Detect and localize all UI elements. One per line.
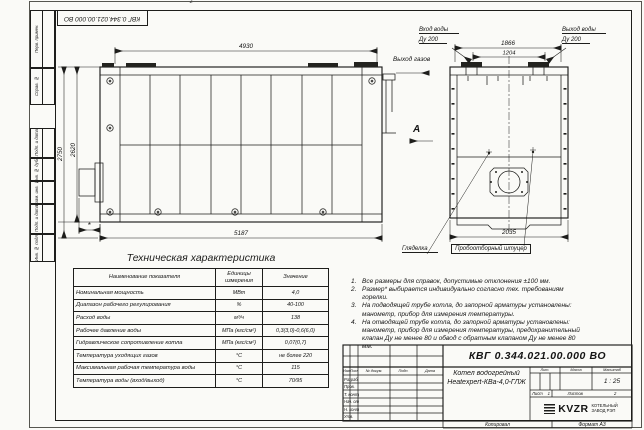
notes: 1.Все размеры для справок, допустимые от… bbox=[351, 278, 584, 351]
spec-header-row: Наименование показателя Единицы измерени… bbox=[74, 269, 329, 287]
sampling-fitting-label: Пробоотборный штуцер bbox=[451, 244, 531, 254]
scale-label: Масштаб bbox=[592, 367, 632, 373]
table-row: Рабочее давление водыМПа (кгс/см²)0,3(3,… bbox=[74, 324, 329, 337]
format-label: Формат А3 bbox=[552, 421, 632, 429]
water-inlet-label: Вход воды bbox=[419, 27, 459, 34]
spec-header-name: Наименование показателя bbox=[74, 269, 216, 287]
gas-outlet-label: Выход газов bbox=[393, 56, 430, 63]
col-data: Дата bbox=[417, 368, 443, 375]
view-a-marker: A bbox=[413, 124, 420, 135]
sheets-cell: Листов 2 bbox=[552, 390, 632, 397]
scale-value: 1 : 25 bbox=[592, 375, 632, 388]
col-list: Лист bbox=[350, 368, 358, 375]
dim-1204: 1204 bbox=[503, 51, 516, 57]
lit-label: Лит. bbox=[530, 367, 560, 373]
water-outlet-dn-label: Ду 200 bbox=[562, 37, 590, 44]
water-outlet-label: Выход воды bbox=[562, 27, 606, 34]
title-block-doc-number: КВГ 0.344.021.00.000 ВО bbox=[443, 346, 632, 366]
dim-asterisk: * bbox=[87, 221, 91, 230]
row-nachotd: Нач. отд. bbox=[344, 398, 359, 405]
dim-2035: 2035 bbox=[501, 229, 517, 236]
side-view-linework bbox=[58, 47, 433, 242]
spec-header-units: Единицы измерения bbox=[216, 269, 263, 287]
note-item: 1.Все размеры для справок, допустимые от… bbox=[351, 278, 584, 286]
dimension-texts: 4930 5187 2750 2620 * 1866 1204 2035 bbox=[57, 40, 516, 237]
row-razrab: Разраб. bbox=[344, 376, 359, 383]
col-docnum: № докум. bbox=[358, 368, 390, 375]
spec-table-title: Техническая характеристика bbox=[73, 252, 329, 264]
drawing-sheet: Перв. примен. Справ. № Подп. и дата Инв.… bbox=[0, 0, 644, 430]
kvzr-logo-subtitle: КОТЕЛЬНЫЙ ЗАВОД РЭП bbox=[591, 404, 617, 414]
sight-glass-label: Гляделка bbox=[402, 246, 438, 253]
sheet-cell: Лист 1 bbox=[530, 390, 552, 397]
end-view-linework bbox=[427, 44, 568, 254]
note-item: 3.На подводящей трубе котла, до запорной… bbox=[351, 302, 584, 318]
mass-label: Масса bbox=[560, 367, 592, 373]
table-row: Температура уходящих газов°Сне более 220 bbox=[74, 349, 329, 362]
spec-header-value: Значение bbox=[263, 269, 329, 287]
table-row: Расход водым³/ч138 bbox=[74, 312, 329, 325]
col-izm: Изм. bbox=[343, 368, 350, 375]
dim-4930: 4930 bbox=[239, 43, 254, 50]
table-row: Гидравлическое сопротивление котлаМПа (к… bbox=[74, 337, 329, 350]
row-tkontr: Т. контр. bbox=[344, 391, 359, 398]
kvzr-logo: KVZR КОТЕЛЬНЫЙ ЗАВОД РЭП bbox=[531, 398, 631, 420]
table-row: Максимальная рабочая температура воды°С1… bbox=[74, 362, 329, 375]
row-prov: Пров. bbox=[344, 383, 359, 390]
dim-2750: 2750 bbox=[57, 147, 64, 163]
spec-table: Наименование показателя Единицы измерени… bbox=[73, 268, 329, 388]
sheets-value: 2 bbox=[614, 390, 616, 397]
row-utv: Утв. bbox=[344, 413, 359, 420]
table-row: Диапазон рабочего регулирования%40-100 bbox=[74, 299, 329, 312]
product-name-line2: Heatexpert-КВа-4,0-ГЛЖ bbox=[443, 379, 530, 386]
row-nkontr: Н. контр. bbox=[344, 406, 359, 413]
col-podp: Подп. bbox=[390, 368, 417, 375]
kvzr-logo-text: KVZR bbox=[558, 403, 588, 415]
sheet-label: Лист bbox=[532, 390, 543, 397]
dim-5187: 5187 bbox=[234, 230, 249, 237]
dim-2620: 2620 bbox=[70, 143, 77, 159]
water-inlet-dn-label: Ду 200 bbox=[419, 37, 447, 44]
copied-label: Копировал bbox=[443, 421, 552, 429]
product-name-line1: Котел водогрейный bbox=[443, 370, 530, 377]
dim-1866: 1866 bbox=[501, 40, 516, 47]
sheet-value: 1 bbox=[548, 390, 550, 397]
sheets-label: Листов bbox=[568, 390, 583, 397]
kvzr-logo-mark-icon bbox=[544, 404, 555, 414]
table-row: Температура воды (вход/выход)°С70/95 bbox=[74, 375, 329, 388]
note-item: 2.Размер* выбирается индивидуально согла… bbox=[351, 286, 584, 302]
table-row: Номинальная мощностьМВт4,0 bbox=[74, 287, 329, 300]
